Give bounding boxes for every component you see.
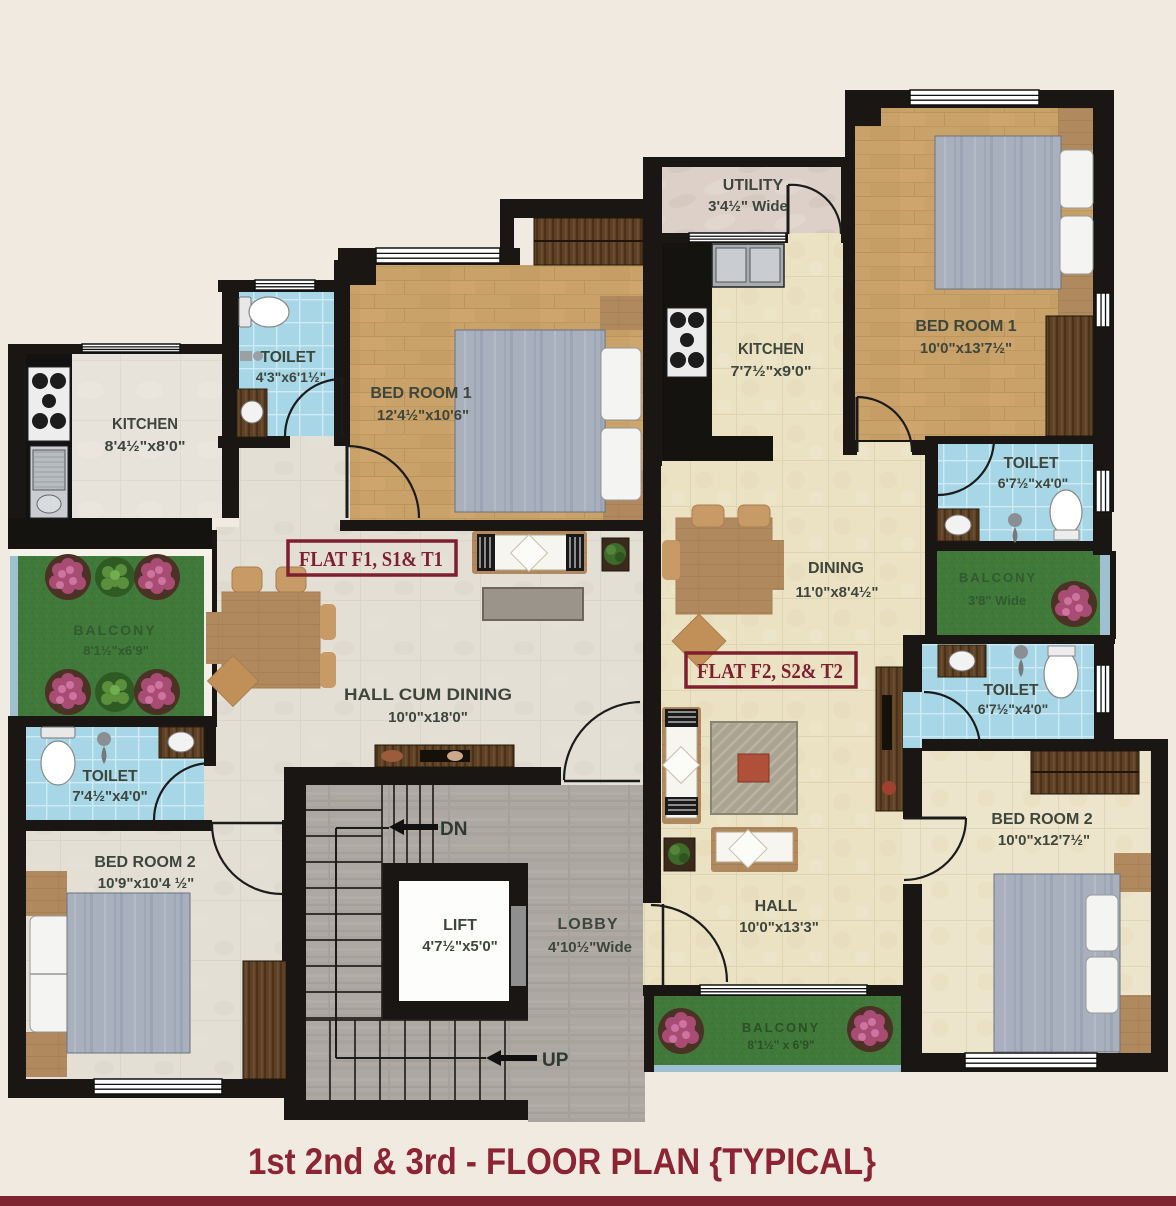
svg-text:KITCHEN: KITCHEN [738,341,804,358]
svg-text:8'1½"x6'9": 8'1½"x6'9" [83,643,149,658]
svg-text:BED ROOM 1: BED ROOM 1 [915,318,1016,335]
svg-text:12'4½"x10'6": 12'4½"x10'6" [377,407,469,424]
svg-text:TOILET: TOILET [1004,455,1059,472]
svg-text:FLAT F1, S1& T1: FLAT F1, S1& T1 [299,547,443,571]
svg-text:10'0"x18'0": 10'0"x18'0" [388,709,468,726]
svg-text:4'3"x6'1½": 4'3"x6'1½" [256,369,327,385]
svg-text:DINING: DINING [808,560,864,577]
svg-text:3'4½" Wide: 3'4½" Wide [708,198,788,215]
svg-text:BED ROOM 2: BED ROOM 2 [991,811,1092,828]
svg-text:DN: DN [440,819,467,840]
svg-text:LOBBY: LOBBY [558,916,619,933]
svg-text:BALCONY: BALCONY [742,1020,820,1035]
svg-text:BED ROOM 1: BED ROOM 1 [370,385,471,402]
svg-text:10'9"x10'4 ½": 10'9"x10'4 ½" [98,875,194,892]
svg-text:6'7½"x4'0": 6'7½"x4'0" [998,475,1069,491]
svg-text:UTILITY: UTILITY [723,177,784,194]
svg-text:TOILET: TOILET [83,768,138,785]
svg-text:4'7½"x5'0": 4'7½"x5'0" [422,938,498,955]
svg-text:4'10½"Wide: 4'10½"Wide [548,939,632,956]
svg-text:UP: UP [542,1050,569,1071]
svg-text:10'0"x12'7½": 10'0"x12'7½" [998,832,1090,849]
svg-text:HALL CUM DINING: HALL CUM DINING [344,685,512,704]
svg-text:BALCONY: BALCONY [73,622,156,638]
svg-text:10'0"x13'7½": 10'0"x13'7½" [920,340,1012,357]
svg-text:6'7½"x4'0": 6'7½"x4'0" [978,701,1049,717]
svg-text:TOILET: TOILET [984,682,1039,699]
svg-text:FLAT F2, S2& T2: FLAT F2, S2& T2 [697,659,843,683]
svg-text:1st 2nd & 3rd - FLOOR PLAN: 1st 2nd & 3rd - FLOOR PLAN {TYPICAL} [248,1141,876,1182]
svg-text:LIFT: LIFT [443,917,477,934]
svg-text:10'0"x13'3": 10'0"x13'3" [739,919,819,936]
svg-text:3'8" Wide: 3'8" Wide [968,593,1026,608]
svg-text:BALCONY: BALCONY [959,570,1037,585]
svg-text:8'1½" x 6'9": 8'1½" x 6'9" [747,1038,814,1052]
svg-text:HALL: HALL [755,898,798,915]
svg-text:KITCHEN: KITCHEN [112,416,178,433]
svg-text:11'0"x8'4½": 11'0"x8'4½" [795,584,878,601]
svg-text:7'7½"x9'0": 7'7½"x9'0" [731,363,812,380]
svg-text:7'4½"x4'0": 7'4½"x4'0" [72,788,148,805]
svg-text:8'4½"x8'0": 8'4½"x8'0" [105,438,186,455]
svg-text:TOILET: TOILET [261,349,316,366]
svg-text:BED ROOM 2: BED ROOM 2 [94,854,195,871]
